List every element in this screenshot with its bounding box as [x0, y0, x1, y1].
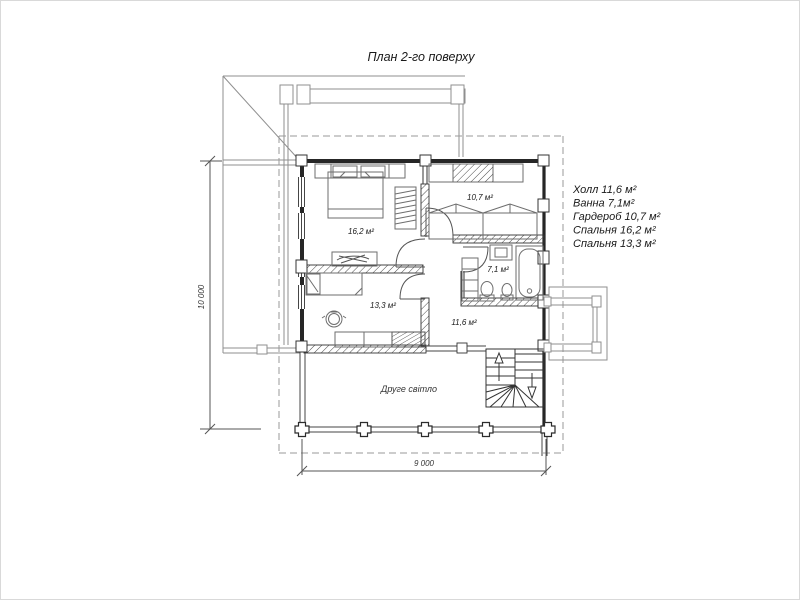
door-bedroom-large [396, 239, 425, 267]
bathtub [516, 246, 543, 300]
second-light-label: Друге світло [380, 384, 437, 394]
legend-item-bedroom-large: Спальня 16,2 м² [573, 225, 656, 237]
room-label-hall: 11,6 м² [451, 318, 477, 327]
dimension-left: 10 000 [197, 156, 261, 434]
room-label-bedroom-small: 13,3 м² [370, 301, 396, 310]
dresser-with-plant [332, 252, 377, 266]
dimension-width-label: 9 000 [414, 459, 435, 468]
door-bedroom-small [400, 274, 425, 299]
room-label-wardrobe: 10,7 м² [467, 193, 493, 202]
shelf-unit [395, 187, 416, 229]
dimension-height-label: 10 000 [197, 284, 206, 309]
room-label-bedroom-large: 16,2 м² [348, 227, 374, 236]
colonnade-columns [295, 423, 555, 437]
dimension-bottom: 9 000 [297, 439, 551, 476]
legend-item-hall: Холл 11,6 м² [572, 184, 637, 196]
plant-pot [322, 311, 346, 327]
bidet [501, 284, 513, 301]
floor-plan-sheet: План 2-го поверху Холл 11,6 м² Ванна 7,1… [0, 0, 800, 600]
window-bedroom-small-2 [297, 285, 306, 309]
legend-item-bedroom-small: Спальня 13,3 м² [573, 238, 656, 250]
balcony [544, 287, 607, 360]
bedroom-small-furniture [306, 273, 425, 347]
legend: Холл 11,6 м² Ванна 7,1м² Гардероб 10,7 м… [572, 184, 661, 250]
window-bedroom-large-2 [297, 213, 306, 239]
hanging-rack [429, 164, 523, 182]
legend-item-wardrobe: Гардероб 10,7 м² [573, 211, 661, 223]
bedroom-large-furniture [315, 164, 416, 266]
double-bed [315, 164, 405, 218]
staircase [486, 349, 544, 407]
legend-item-bath: Ванна 7,1м² [573, 198, 635, 210]
washbasin [490, 245, 512, 260]
page-title: План 2-го поверху [367, 50, 475, 64]
door-bathroom [463, 247, 488, 272]
room-label-bathroom: 7,1 м² [487, 265, 509, 274]
single-bed [306, 273, 362, 295]
window-bedroom-large-1 [297, 177, 306, 207]
floor-plan-drawing: План 2-го поверху Холл 11,6 м² Ванна 7,1… [1, 1, 800, 600]
wardrobe-units [429, 204, 537, 239]
